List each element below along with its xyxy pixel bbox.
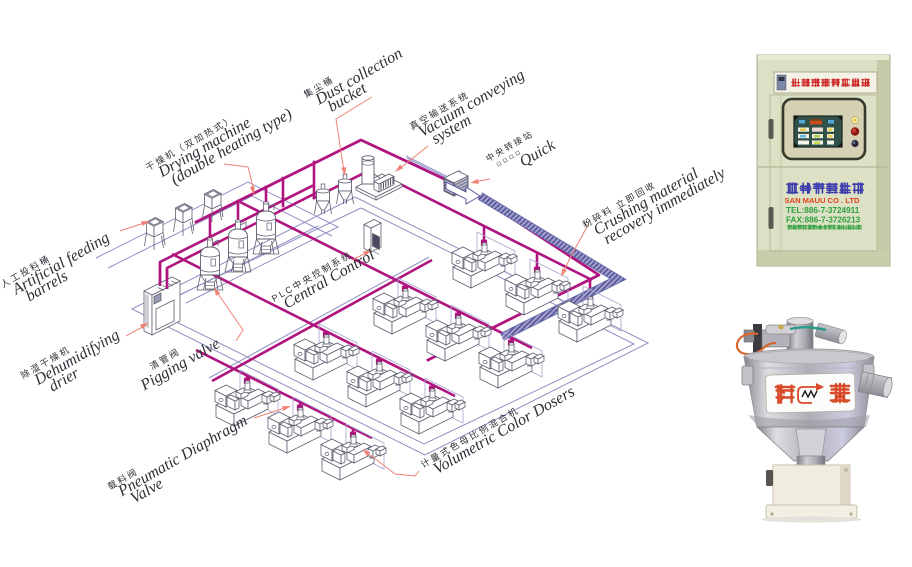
svg-text:SAN MAUU CO . LTD: SAN MAUU CO . LTD: [785, 196, 860, 205]
svg-text:TEL:886-7-3724911: TEL:886-7-3724911: [786, 206, 860, 215]
svg-text:FAX:886-7-3726213: FAX:886-7-3726213: [786, 216, 861, 225]
